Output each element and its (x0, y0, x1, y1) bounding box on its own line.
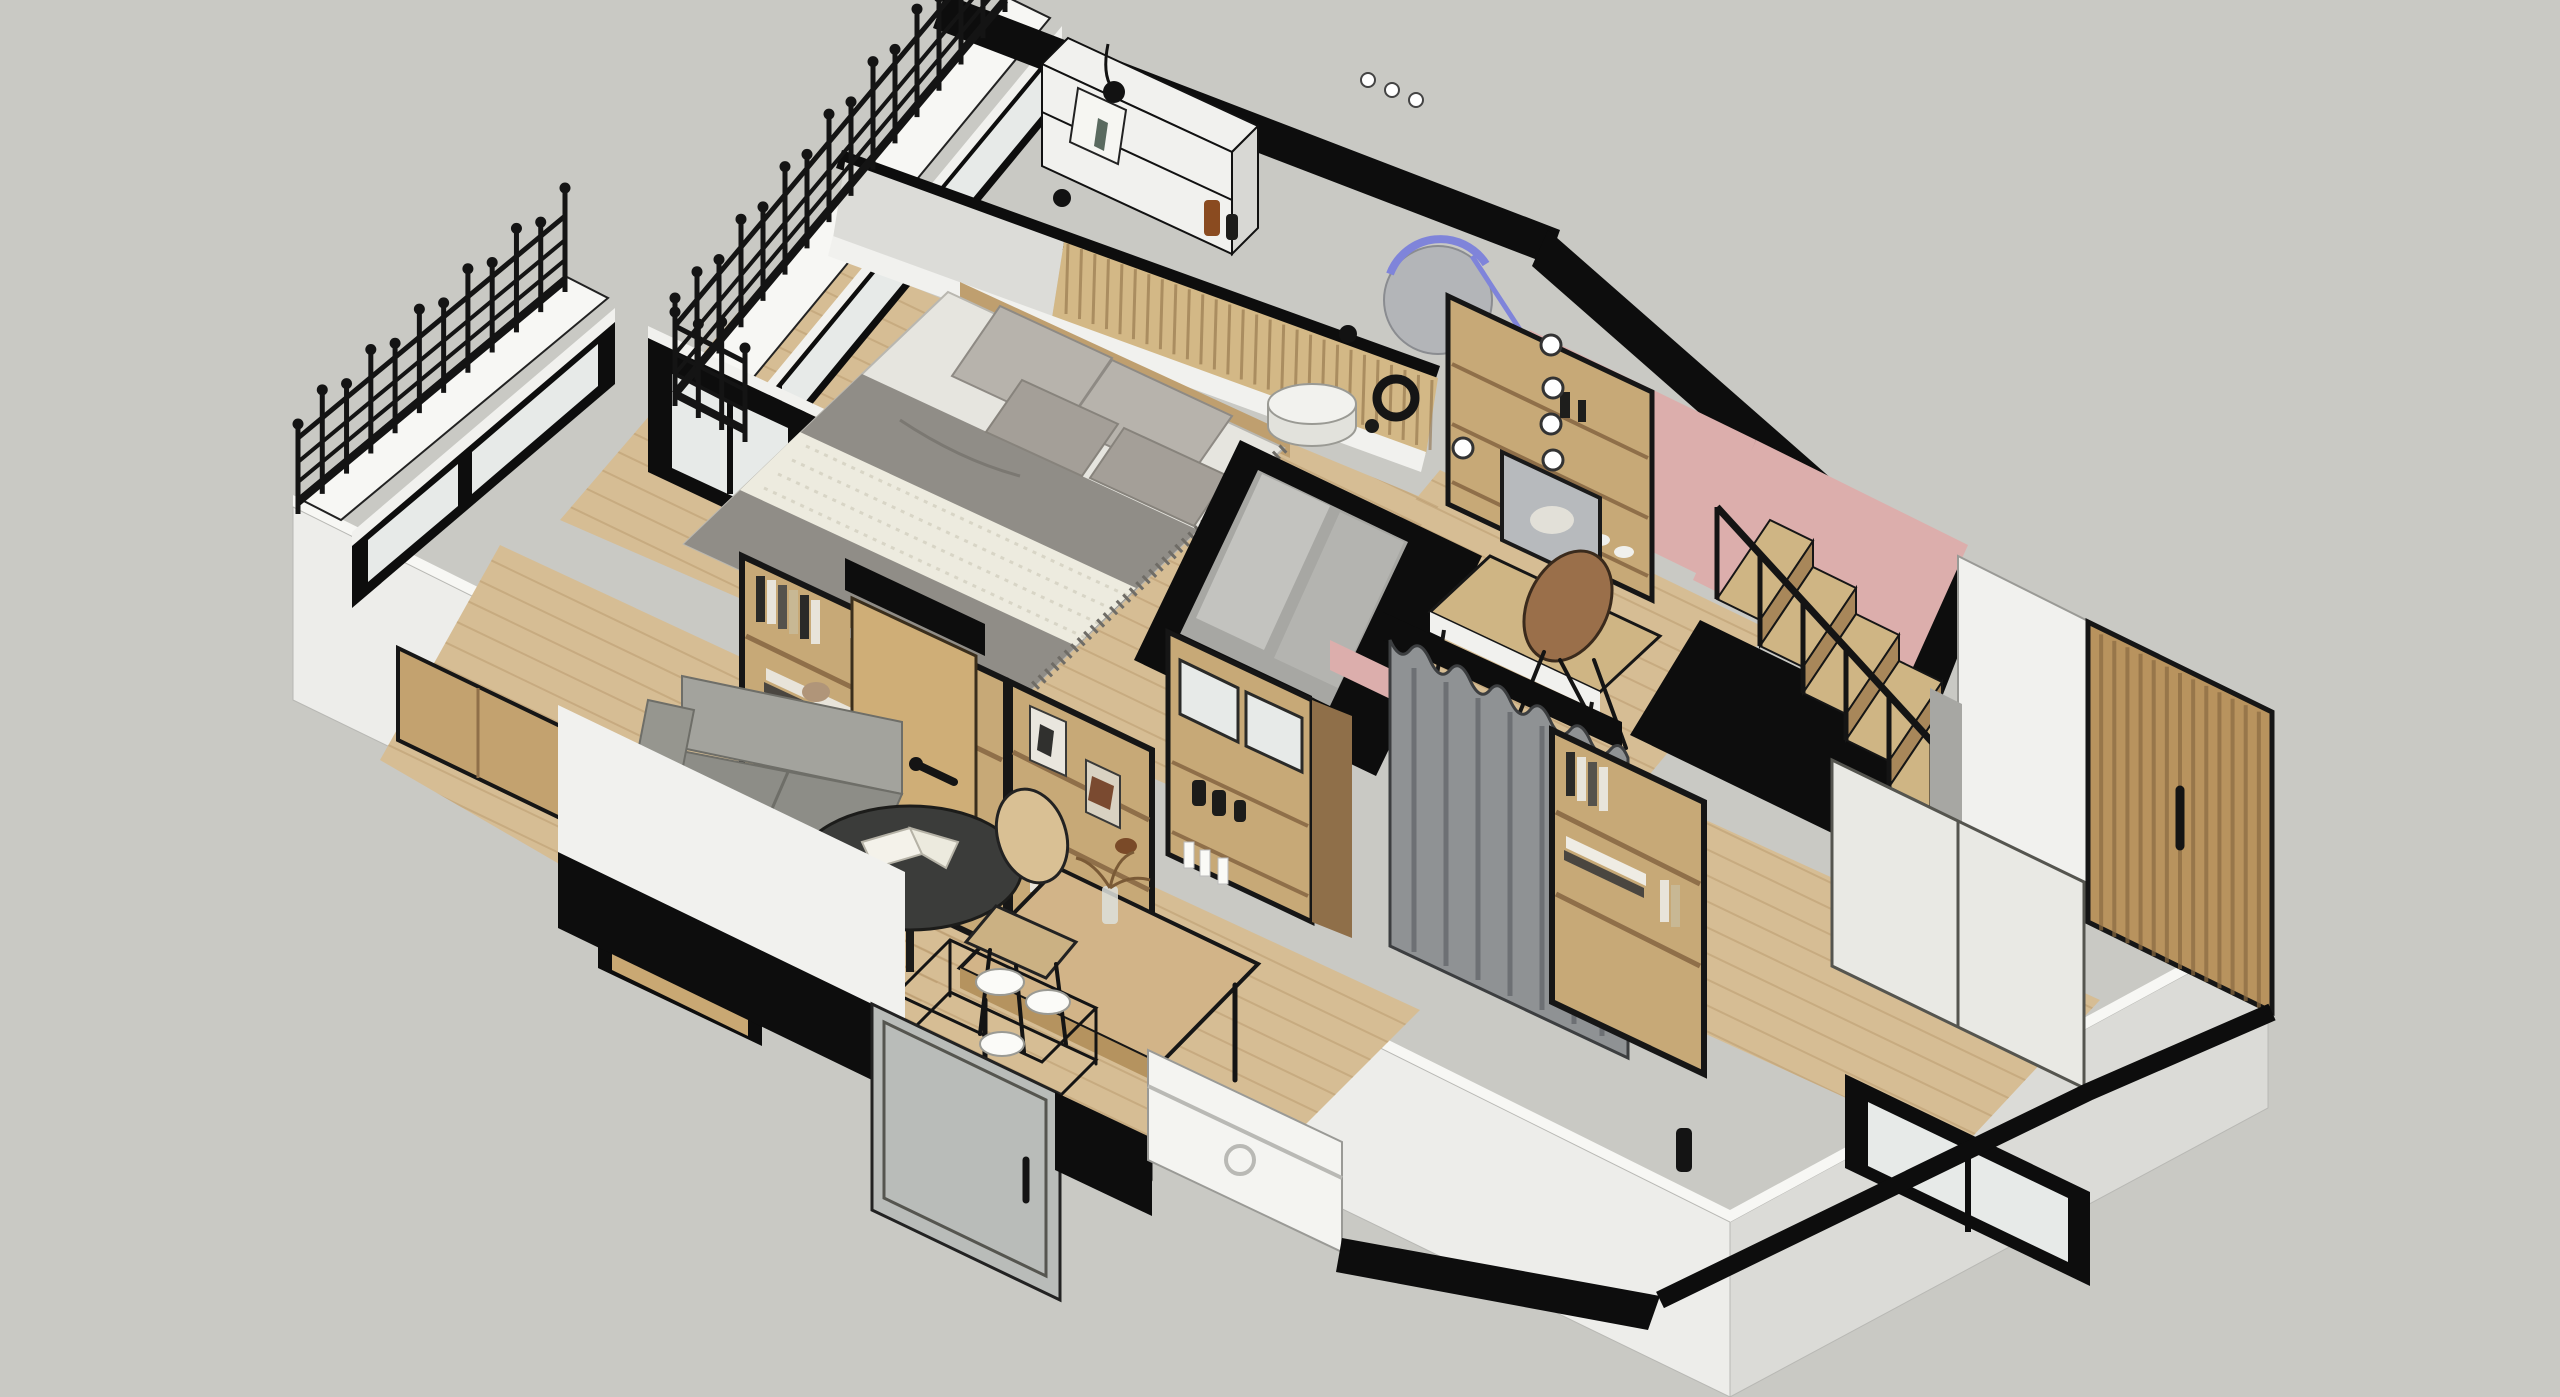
bowl (1026, 990, 1070, 1014)
wall-sconce (1053, 189, 1071, 207)
bowl (976, 969, 1024, 995)
vase (1226, 214, 1238, 240)
vase (1204, 200, 1220, 236)
pendant-lamp (1103, 81, 1125, 103)
bowl (980, 1032, 1024, 1056)
wall-sconce (1339, 325, 1357, 343)
flower-vase (1102, 886, 1118, 924)
apartment-cutaway-render (0, 0, 2560, 1397)
wall-lamp (1676, 1128, 1692, 1172)
